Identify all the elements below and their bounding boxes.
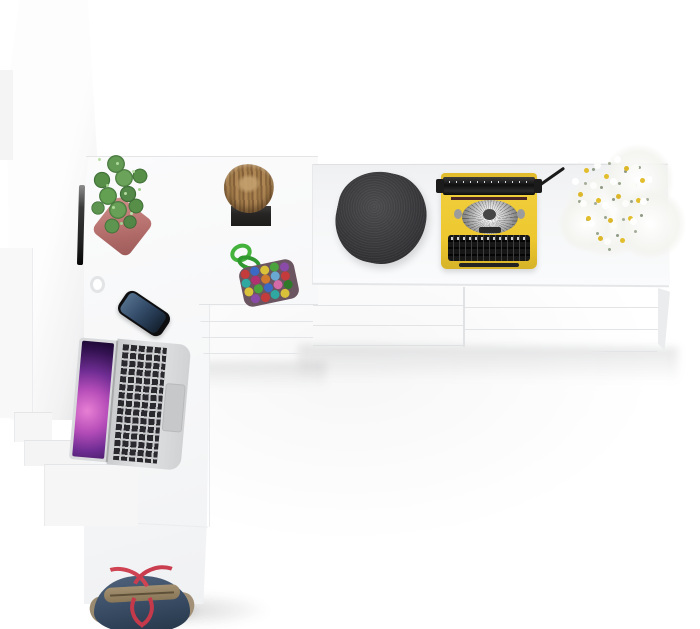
flower-yellow-centers xyxy=(584,168,589,173)
sideboard-edge xyxy=(312,164,313,284)
laptop-trackpad xyxy=(162,383,186,433)
hutch-panel-notch xyxy=(0,70,13,160)
phone-body xyxy=(115,288,173,339)
typewriter-scale-ticks xyxy=(449,181,529,183)
typewriter xyxy=(441,169,541,269)
typewriter-number-row xyxy=(451,237,527,240)
desk-side-step xyxy=(44,464,138,526)
desk-side-step xyxy=(14,412,52,442)
ribbon-spool xyxy=(517,209,525,219)
potted-cactus xyxy=(90,150,156,254)
typewriter-platen xyxy=(443,177,535,195)
drawer-unit-mid xyxy=(313,286,463,346)
cable-hook xyxy=(90,276,105,293)
pompom-trivet xyxy=(220,244,298,302)
log-stool xyxy=(224,164,276,228)
sideboard-side-panel xyxy=(658,288,670,350)
hutch-side-panel xyxy=(0,248,33,418)
flower-bouquet xyxy=(558,144,688,264)
typewriter-spacebar xyxy=(459,263,519,267)
drawer-unit-right xyxy=(464,286,664,356)
scene-canvas xyxy=(0,0,700,629)
flower-cluster xyxy=(558,196,614,252)
cactus-highlights xyxy=(98,158,101,161)
flower-white-petals xyxy=(576,156,583,163)
floor-shadow xyxy=(194,362,326,396)
handbag xyxy=(90,568,194,629)
typebar-center xyxy=(483,209,496,220)
ribbon-spool xyxy=(454,209,462,219)
drawer-unit-left xyxy=(199,306,313,366)
phone-screen xyxy=(119,291,168,335)
pompom-dots xyxy=(240,269,251,280)
typewriter-badge xyxy=(479,227,501,233)
smartphone xyxy=(116,288,172,340)
laptop xyxy=(69,335,192,470)
cactus-leaves xyxy=(90,150,154,238)
platen-knob xyxy=(436,179,444,193)
drawer-divider xyxy=(463,287,465,347)
flower-cluster xyxy=(614,188,686,260)
